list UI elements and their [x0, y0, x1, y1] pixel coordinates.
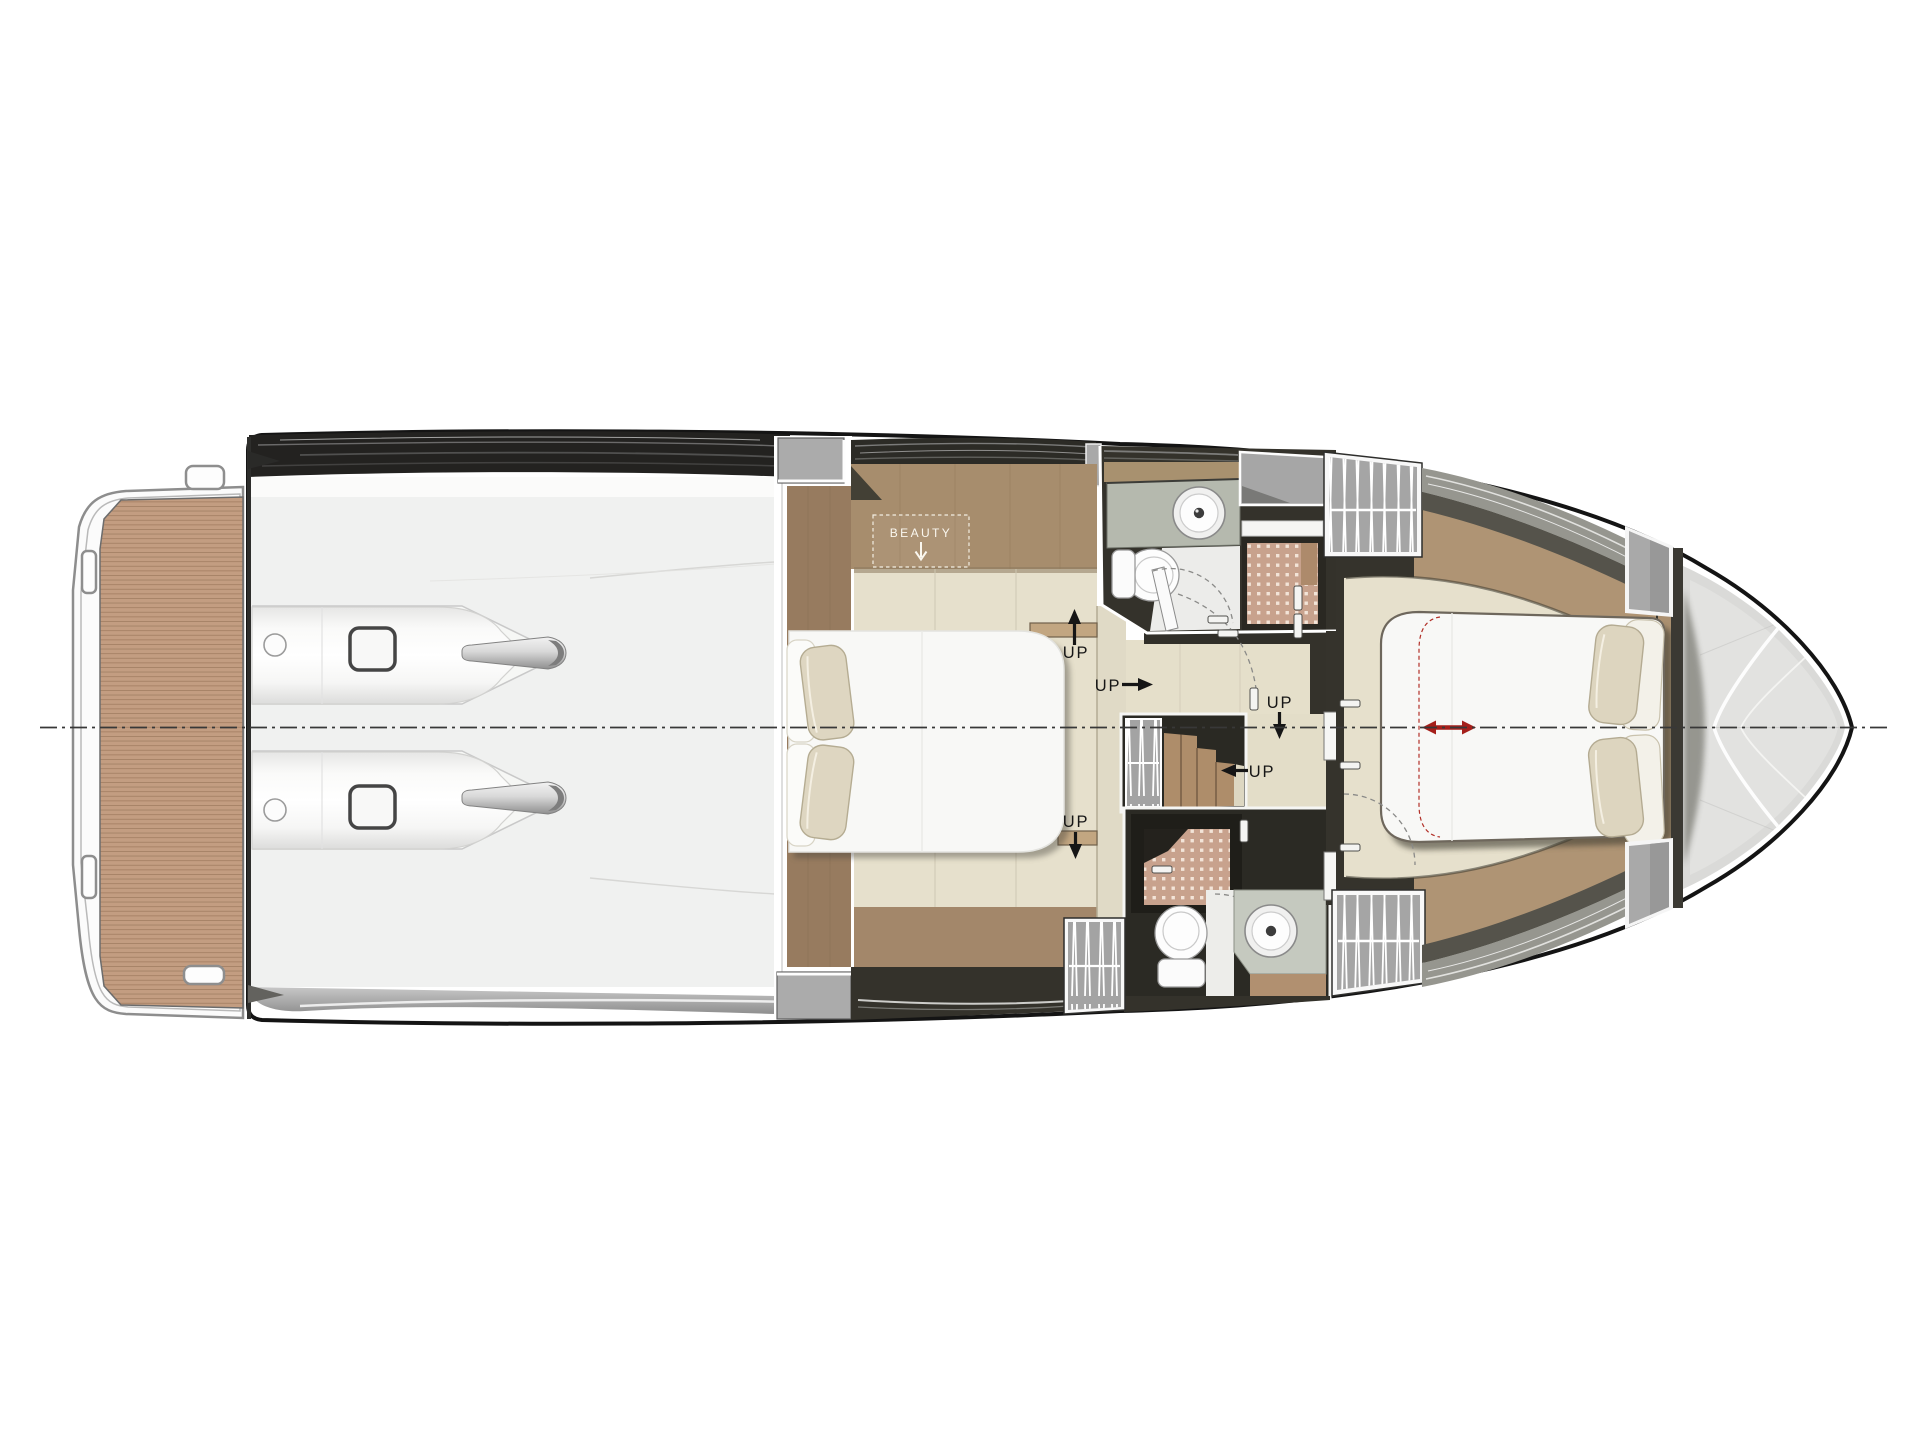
svg-text:UP: UP — [1095, 677, 1122, 695]
svg-text:UP: UP — [1063, 644, 1090, 662]
svg-text:UP: UP — [1267, 694, 1294, 712]
svg-text:BEAUTY: BEAUTY — [890, 526, 952, 540]
svg-text:UP: UP — [1063, 813, 1090, 831]
svg-text:UP: UP — [1249, 763, 1276, 781]
